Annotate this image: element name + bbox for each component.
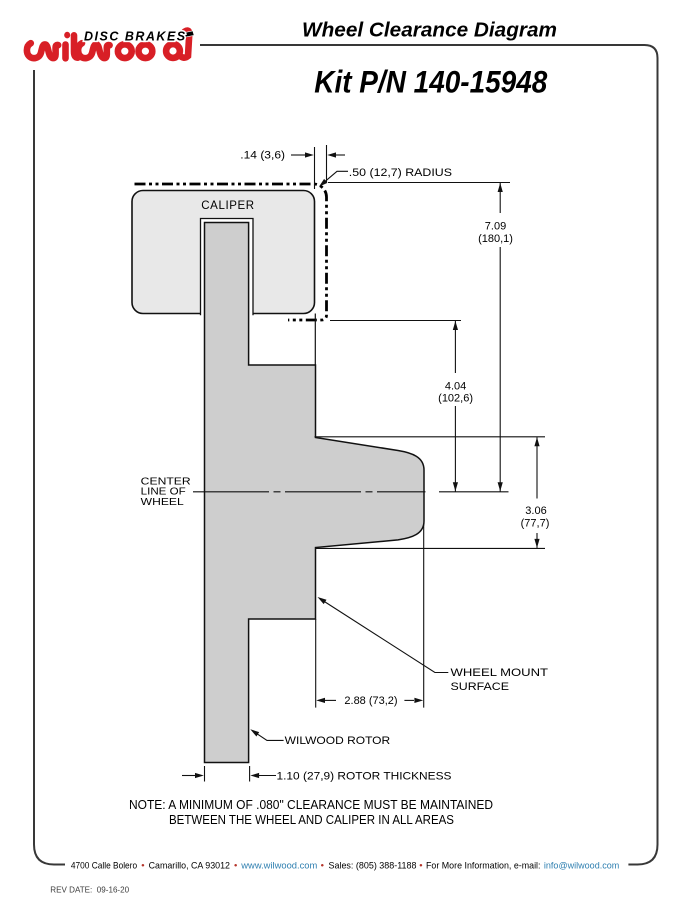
svg-text:BETWEEN THE WHEEL AND CALIPER: BETWEEN THE WHEEL AND CALIPER IN ALL ARE…	[169, 812, 454, 827]
svg-text:CALIPER: CALIPER	[201, 200, 254, 212]
svg-text:Sales: (805) 388-1188: Sales: (805) 388-1188	[329, 860, 417, 871]
svg-text:7.09: 7.09	[485, 221, 506, 233]
svg-text:.50 (12,7) RADIUS: .50 (12,7) RADIUS	[349, 167, 452, 179]
svg-text:WILWOOD ROTOR: WILWOOD ROTOR	[285, 735, 391, 747]
svg-text:•: •	[419, 860, 422, 871]
svg-text:NOTE: A MINIMUM OF .080" CLEAR: NOTE: A MINIMUM OF .080" CLEARANCE MUST …	[129, 797, 493, 812]
svg-text:4.04: 4.04	[445, 380, 466, 392]
svg-text:1.10 (27,9) ROTOR THICKNESS: 1.10 (27,9) ROTOR THICKNESS	[277, 771, 452, 783]
svg-text:•: •	[321, 860, 324, 871]
svg-text:2.88 (73,2): 2.88 (73,2)	[344, 695, 397, 707]
svg-text:DISC BRAKES: DISC BRAKES	[84, 29, 187, 43]
svg-text:(77,7): (77,7)	[521, 518, 550, 530]
svg-text:•: •	[141, 860, 144, 871]
svg-text:Kit P/N 140-15948: Kit P/N 140-15948	[314, 64, 547, 100]
svg-text:REV DATE: 09-16-20: REV DATE: 09-16-20	[50, 885, 129, 895]
svg-text:Wheel Clearance Diagram: Wheel Clearance Diagram	[302, 19, 557, 42]
svg-text:(180,1): (180,1)	[478, 233, 513, 245]
svg-text:.14 (3,6): .14 (3,6)	[240, 150, 285, 162]
svg-text:info@wilwood.com: info@wilwood.com	[544, 860, 619, 871]
svg-text:www.wilwood.com: www.wilwood.com	[240, 860, 317, 871]
svg-text:(102,6): (102,6)	[438, 393, 473, 405]
svg-text:WHEEL MOUNT: WHEEL MOUNT	[451, 667, 549, 679]
svg-text:WHEEL: WHEEL	[141, 497, 185, 508]
svg-text:For More Information, e-mail:: For More Information, e-mail:	[426, 860, 541, 871]
svg-text:4700 Calle Bolero: 4700 Calle Bolero	[71, 860, 137, 871]
svg-text:•: •	[234, 860, 237, 871]
svg-text:Camarillo, CA 93012: Camarillo, CA 93012	[149, 860, 230, 871]
svg-text:3.06: 3.06	[525, 505, 546, 517]
svg-text:SURFACE: SURFACE	[451, 681, 510, 693]
